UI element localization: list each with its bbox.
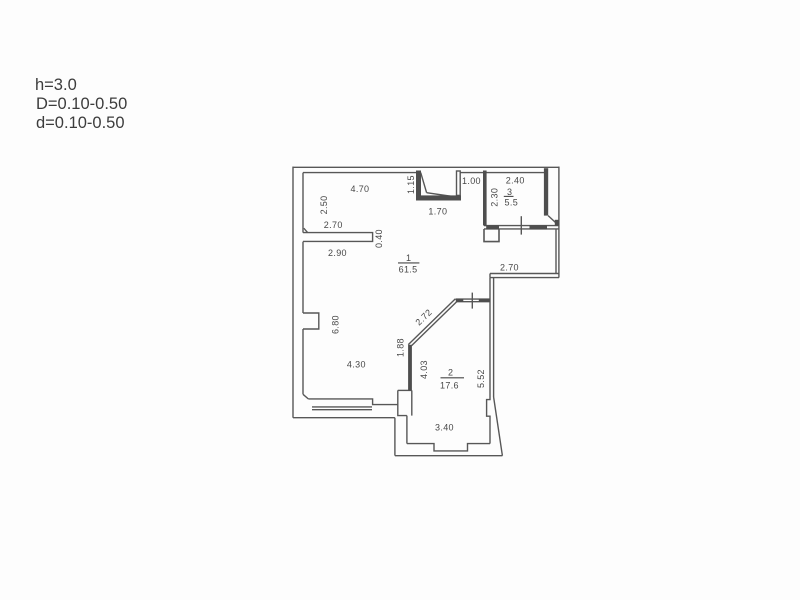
svg-text:4.70: 4.70: [351, 184, 370, 194]
svg-text:3.40: 3.40: [435, 423, 454, 433]
svg-text:61.5: 61.5: [399, 264, 418, 274]
svg-text:2.40: 2.40: [506, 176, 525, 186]
svg-text:2.70: 2.70: [500, 263, 519, 273]
svg-text:2: 2: [448, 368, 453, 378]
svg-text:2.30: 2.30: [489, 188, 499, 207]
svg-text:6.80: 6.80: [331, 315, 341, 334]
svg-text:4.30: 4.30: [347, 360, 366, 370]
svg-text:5.5: 5.5: [505, 198, 519, 208]
svg-text:D=0.10-0.50: D=0.10-0.50: [36, 95, 127, 113]
svg-text:2.50: 2.50: [319, 195, 329, 214]
svg-text:1: 1: [406, 253, 411, 263]
svg-text:5.52: 5.52: [476, 369, 486, 388]
svg-text:3: 3: [507, 187, 512, 197]
svg-text:h=3.0: h=3.0: [35, 76, 77, 94]
svg-text:4.03: 4.03: [419, 360, 429, 379]
svg-text:d=0.10-0.50: d=0.10-0.50: [36, 114, 125, 132]
svg-text:1.70: 1.70: [428, 207, 447, 217]
svg-text:17.6: 17.6: [440, 381, 459, 391]
svg-text:0.40: 0.40: [374, 229, 384, 248]
svg-text:2.70: 2.70: [324, 220, 343, 230]
svg-text:1.00: 1.00: [462, 176, 481, 186]
svg-text:2.72: 2.72: [413, 307, 434, 327]
svg-text:2.90: 2.90: [328, 248, 347, 258]
svg-text:1.88: 1.88: [396, 338, 406, 357]
svg-text:1.15: 1.15: [406, 175, 416, 194]
